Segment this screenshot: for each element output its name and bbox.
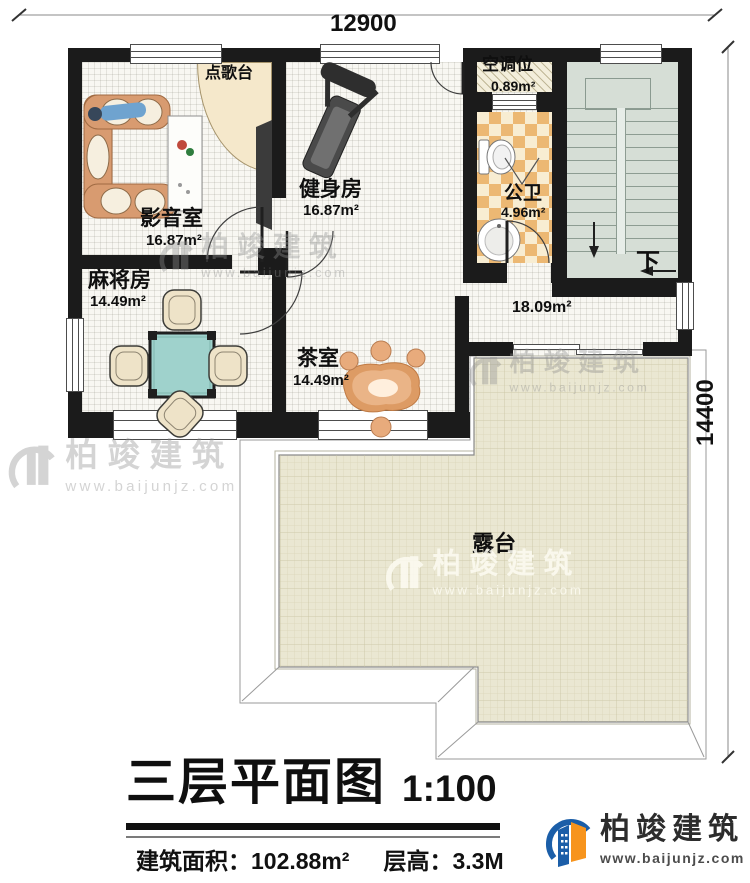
label-hall-area: 18.09m² <box>512 300 572 317</box>
label-tea: 茶室 <box>297 348 339 370</box>
chair <box>110 346 148 386</box>
chair <box>209 346 247 386</box>
label-mahjong-area: 14.49m² <box>90 294 146 310</box>
brand-logo: 柏竣建筑 www.baijunjz.com <box>544 810 745 870</box>
drawing-scale: 1:100 <box>402 768 497 810</box>
label-gym-area: 16.87m² <box>303 203 359 219</box>
building-info: 建筑面积：102.88m²层高：3.3M <box>136 842 504 876</box>
title-rule-thin <box>126 836 500 838</box>
toilet <box>479 140 515 174</box>
label-gym: 健身房 <box>299 179 362 201</box>
mahjong-table <box>148 331 216 398</box>
stairs-down-arrow <box>589 222 676 276</box>
label-tea-area: 14.49m² <box>293 373 349 389</box>
area-label: 建筑面积： <box>136 848 251 874</box>
label-stairs-down: 下 <box>636 250 660 275</box>
area-value: 102.88m² <box>251 848 349 874</box>
page-title: 三层平面图 <box>126 756 386 809</box>
label-bath-area: 4.96m² <box>501 205 545 220</box>
chair <box>163 290 201 330</box>
label-mahjong: 麻将房 <box>88 270 151 292</box>
label-ac-area: 0.89m² <box>491 79 535 94</box>
height-label: 层高： <box>383 848 452 874</box>
brand-website: www.baijunjz.com <box>600 850 745 866</box>
label-media-area: 16.87m² <box>146 233 202 249</box>
title-rule-thick <box>126 823 500 830</box>
label-media: 影音室 <box>140 208 203 230</box>
furniture-svg <box>0 0 750 883</box>
dimension-top: 12900 <box>330 10 397 38</box>
height-value: 3.3M <box>452 848 503 874</box>
tea-table <box>340 341 425 437</box>
brand-name: 柏竣建筑 <box>600 815 745 845</box>
tv <box>256 120 272 230</box>
brand-logo-icon <box>544 810 592 870</box>
sink <box>478 219 520 261</box>
floor-plan-page: 12900 14400 点歌台 空调位 0.89m² 影音室 16.87m² 健… <box>0 0 750 883</box>
label-terrace: 露台 <box>472 532 516 555</box>
coffee-table <box>168 116 202 211</box>
label-bath: 公卫 <box>504 184 542 204</box>
label-karaoke: 点歌台 <box>205 66 253 83</box>
dimension-right: 14400 <box>692 356 720 446</box>
treadmill <box>282 60 381 183</box>
label-ac: 空调位 <box>482 56 533 74</box>
